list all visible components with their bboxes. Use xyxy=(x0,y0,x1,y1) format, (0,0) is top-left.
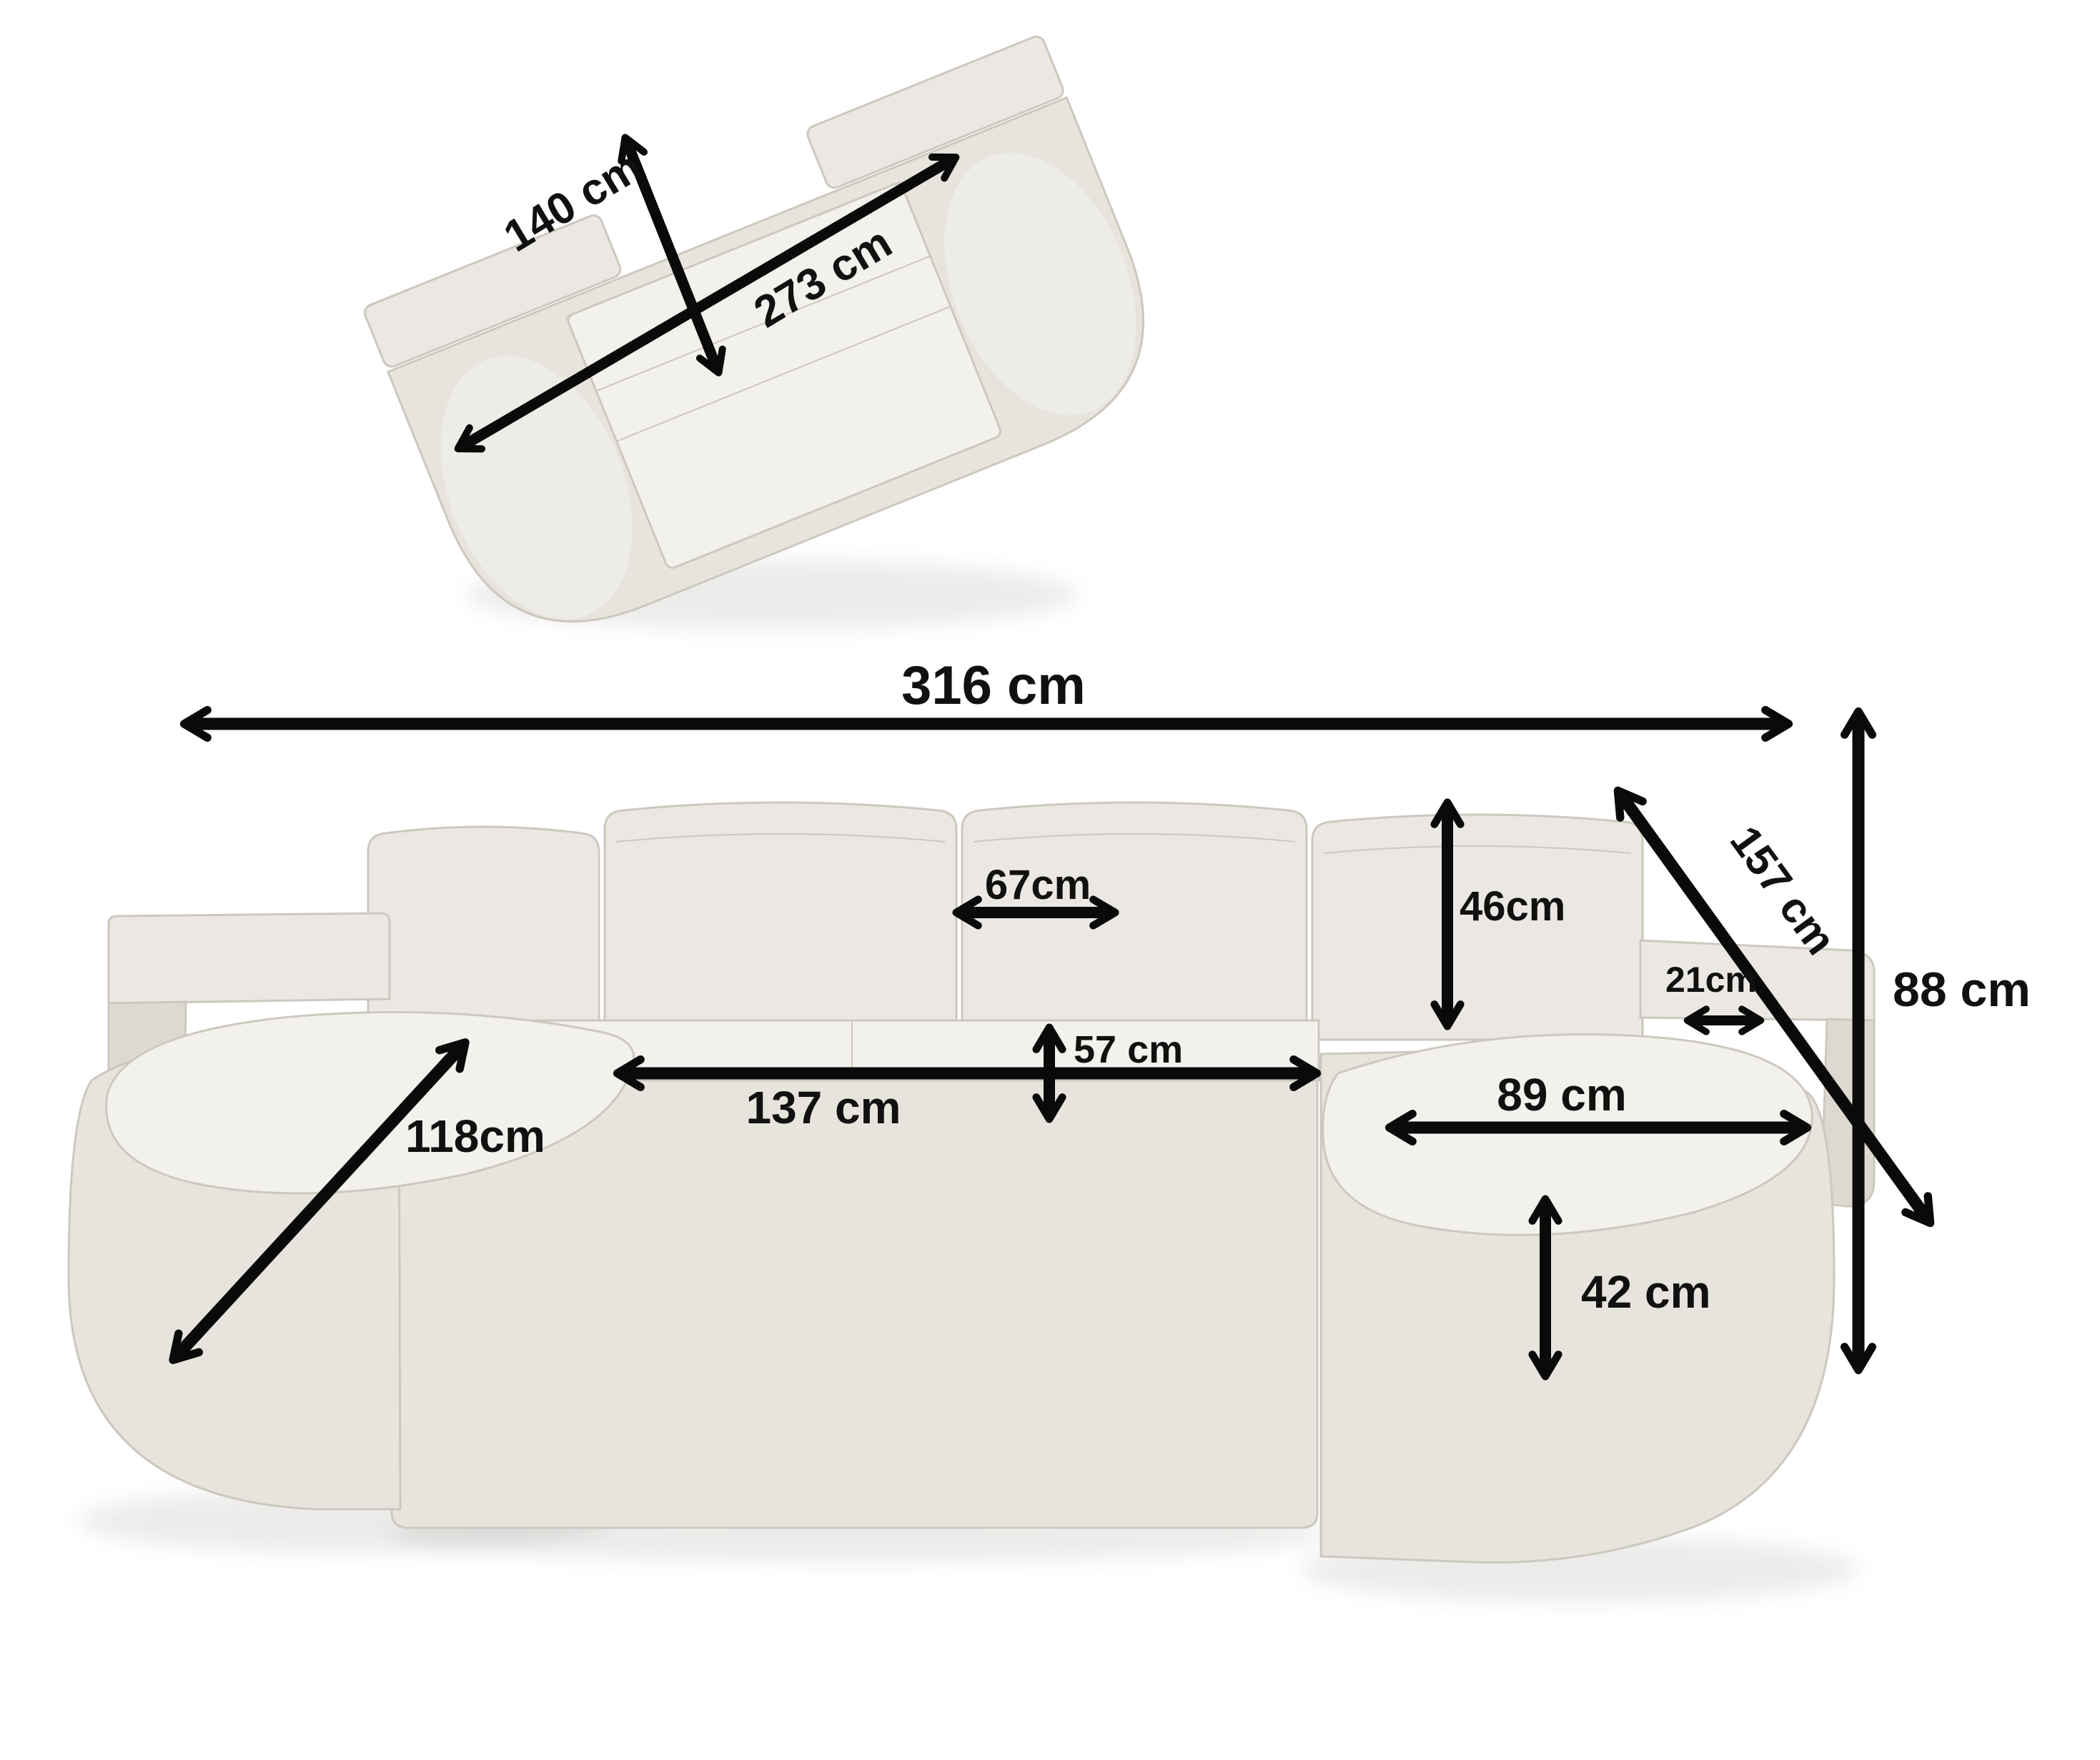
label-total-width: 316 cm xyxy=(901,655,1086,716)
backrest-cushion-1 xyxy=(368,827,599,1038)
label-center-seat-width: 137 cm xyxy=(746,1082,901,1133)
label-backrest-height: 46cm xyxy=(1460,883,1565,930)
label-armrest-width: 21cm xyxy=(1665,960,1757,1000)
label-total-height: 88 cm xyxy=(1893,963,2031,1017)
label-diagonal-depth: 157 cm xyxy=(1721,817,1846,963)
label-left-chaise-length: 118cm xyxy=(405,1110,545,1162)
left-armrest-top xyxy=(109,913,390,1003)
label-right-chaise-length: 89 cm xyxy=(1497,1069,1626,1120)
label-backrest-width: 67cm xyxy=(985,862,1091,908)
diagram-canvas: 316 cm 88 cm 157 cm 67cm 46cm 21cm 57 cm… xyxy=(0,0,2100,1760)
sofa-dimensions-diagram: 316 cm 88 cm 157 cm 67cm 46cm 21cm 57 cm… xyxy=(0,0,2100,1760)
backrest-cushion-3 xyxy=(962,802,1307,1035)
backrest-cushion-2 xyxy=(605,802,956,1035)
label-seat-depth: 57 cm xyxy=(1074,1028,1183,1071)
label-seat-height: 42 cm xyxy=(1581,1266,1710,1318)
